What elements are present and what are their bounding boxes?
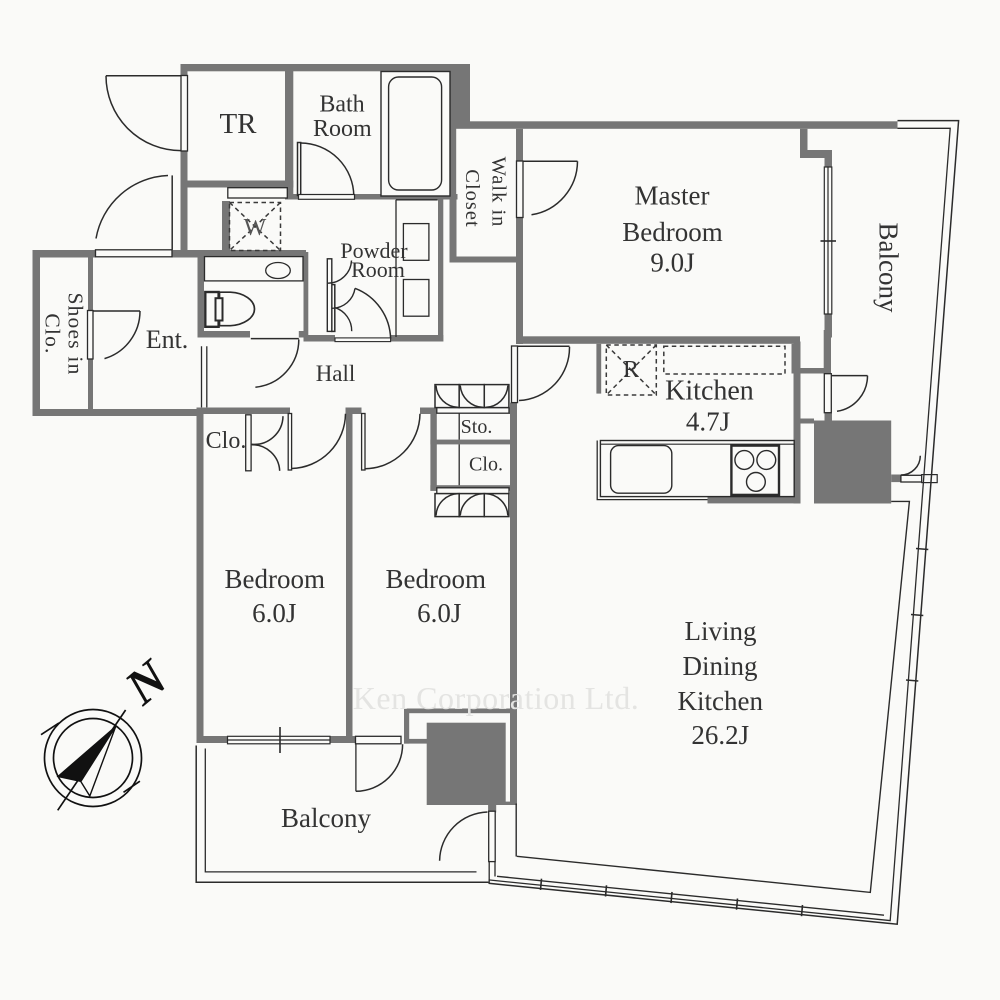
svg-text:Ent.: Ent. [146, 325, 189, 354]
svg-text:Room: Room [313, 116, 372, 142]
svg-text:R: R [623, 357, 639, 383]
svg-text:4.7J: 4.7J [686, 407, 730, 437]
svg-text:6.0J: 6.0J [252, 598, 296, 628]
svg-text:Clo.: Clo. [206, 428, 247, 454]
svg-text:Bedroom: Bedroom [622, 217, 723, 247]
svg-text:Ken Corporation Ltd.: Ken Corporation Ltd. [353, 680, 639, 716]
svg-text:Bedroom: Bedroom [386, 564, 487, 594]
svg-text:Balcony: Balcony [281, 803, 371, 833]
svg-text:Balcony: Balcony [874, 223, 904, 313]
svg-text:Room: Room [351, 257, 405, 282]
svg-text:TR: TR [219, 108, 257, 140]
svg-text:Clo.: Clo. [469, 454, 503, 476]
svg-text:Kitchen: Kitchen [678, 686, 764, 716]
svg-text:W: W [244, 215, 267, 241]
svg-text:Hall: Hall [316, 361, 356, 386]
svg-text:6.0J: 6.0J [417, 598, 461, 628]
svg-text:Kitchen: Kitchen [665, 375, 754, 406]
svg-text:Closet: Closet [461, 169, 483, 227]
svg-text:Master: Master [635, 181, 710, 211]
svg-text:Bath: Bath [319, 92, 364, 118]
svg-text:Dining: Dining [682, 651, 757, 681]
svg-text:26.2J: 26.2J [691, 720, 749, 750]
svg-text:9.0J: 9.0J [650, 248, 694, 278]
svg-text:Shoes in: Shoes in [64, 292, 88, 375]
svg-text:Clo.: Clo. [41, 313, 65, 354]
svg-text:Bedroom: Bedroom [225, 564, 326, 594]
svg-text:Living: Living [685, 616, 757, 646]
svg-text:Walk in: Walk in [487, 157, 509, 228]
svg-text:Sto.: Sto. [461, 416, 493, 438]
